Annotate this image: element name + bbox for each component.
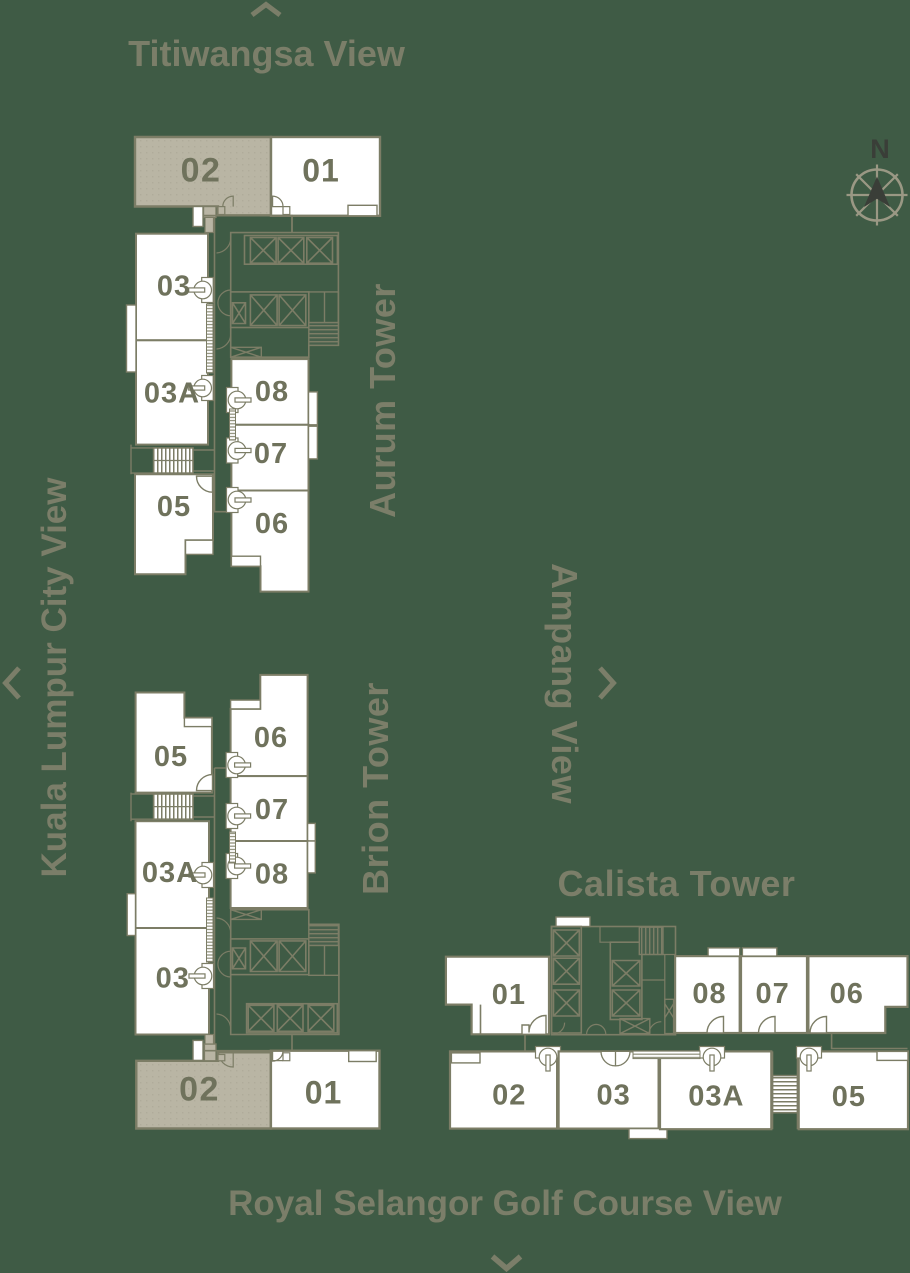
svg-text:02: 02 [179, 1070, 220, 1108]
svg-text:03A: 03A [688, 1081, 744, 1113]
svg-text:06: 06 [255, 508, 289, 540]
svg-text:Ampang View: Ampang View [544, 563, 585, 804]
svg-text:05: 05 [157, 491, 191, 523]
svg-text:07: 07 [255, 794, 289, 826]
svg-text:08: 08 [255, 859, 289, 891]
svg-text:Aurum Tower: Aurum Tower [362, 283, 403, 518]
svg-text:02: 02 [492, 1080, 526, 1112]
svg-text:Brion Tower: Brion Tower [355, 682, 396, 895]
svg-text:N: N [870, 134, 890, 164]
svg-text:08: 08 [255, 376, 289, 408]
svg-text:05: 05 [154, 741, 188, 773]
svg-text:03: 03 [156, 963, 190, 995]
svg-text:03: 03 [157, 271, 191, 303]
svg-text:05: 05 [832, 1081, 866, 1113]
svg-text:01: 01 [305, 1075, 343, 1111]
svg-text:07: 07 [755, 978, 789, 1010]
svg-text:01: 01 [492, 979, 526, 1011]
svg-text:Royal Selangor Golf Course Vie: Royal Selangor Golf Course View [228, 1184, 782, 1223]
svg-text:Calista Tower: Calista Tower [558, 863, 796, 904]
svg-text:01: 01 [302, 153, 340, 189]
svg-text:03A: 03A [142, 857, 198, 889]
svg-text:08: 08 [692, 978, 726, 1010]
svg-text:Kuala Lumpur City View: Kuala Lumpur City View [35, 477, 74, 878]
svg-text:07: 07 [254, 438, 288, 470]
svg-text:03: 03 [596, 1080, 630, 1112]
svg-text:06: 06 [254, 722, 288, 754]
svg-text:Titiwangsa View: Titiwangsa View [128, 33, 406, 74]
svg-text:06: 06 [830, 978, 864, 1010]
svg-text:02: 02 [181, 152, 222, 190]
svg-text:03A: 03A [144, 378, 200, 410]
